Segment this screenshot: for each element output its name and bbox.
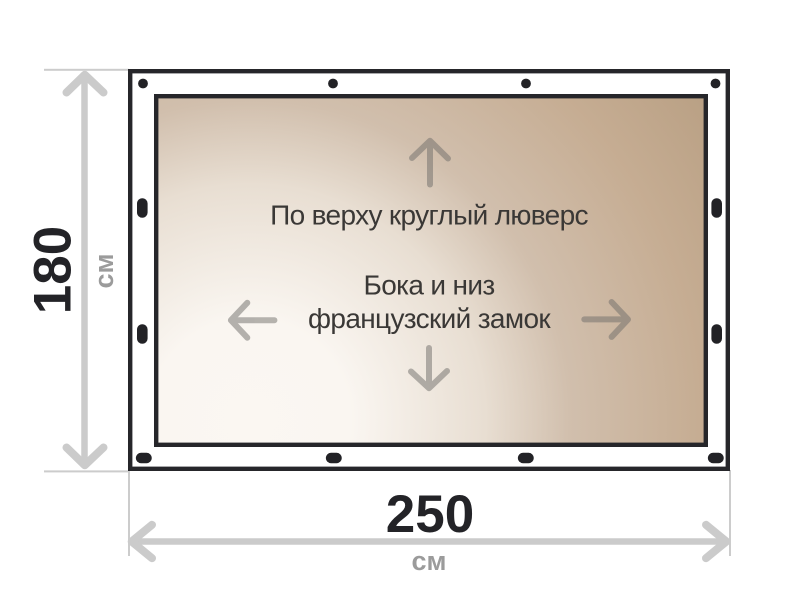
svg-text:По верху круглый люверс: По верху круглый люверс [270,200,588,231]
svg-text:французский замок: французский замок [308,303,551,334]
svg-text:250: 250 [386,485,474,544]
svg-text:см: см [89,254,119,289]
svg-text:см: см [412,546,447,576]
svg-text:Бока и низ: Бока и низ [363,270,494,301]
svg-text:180: 180 [24,226,83,314]
